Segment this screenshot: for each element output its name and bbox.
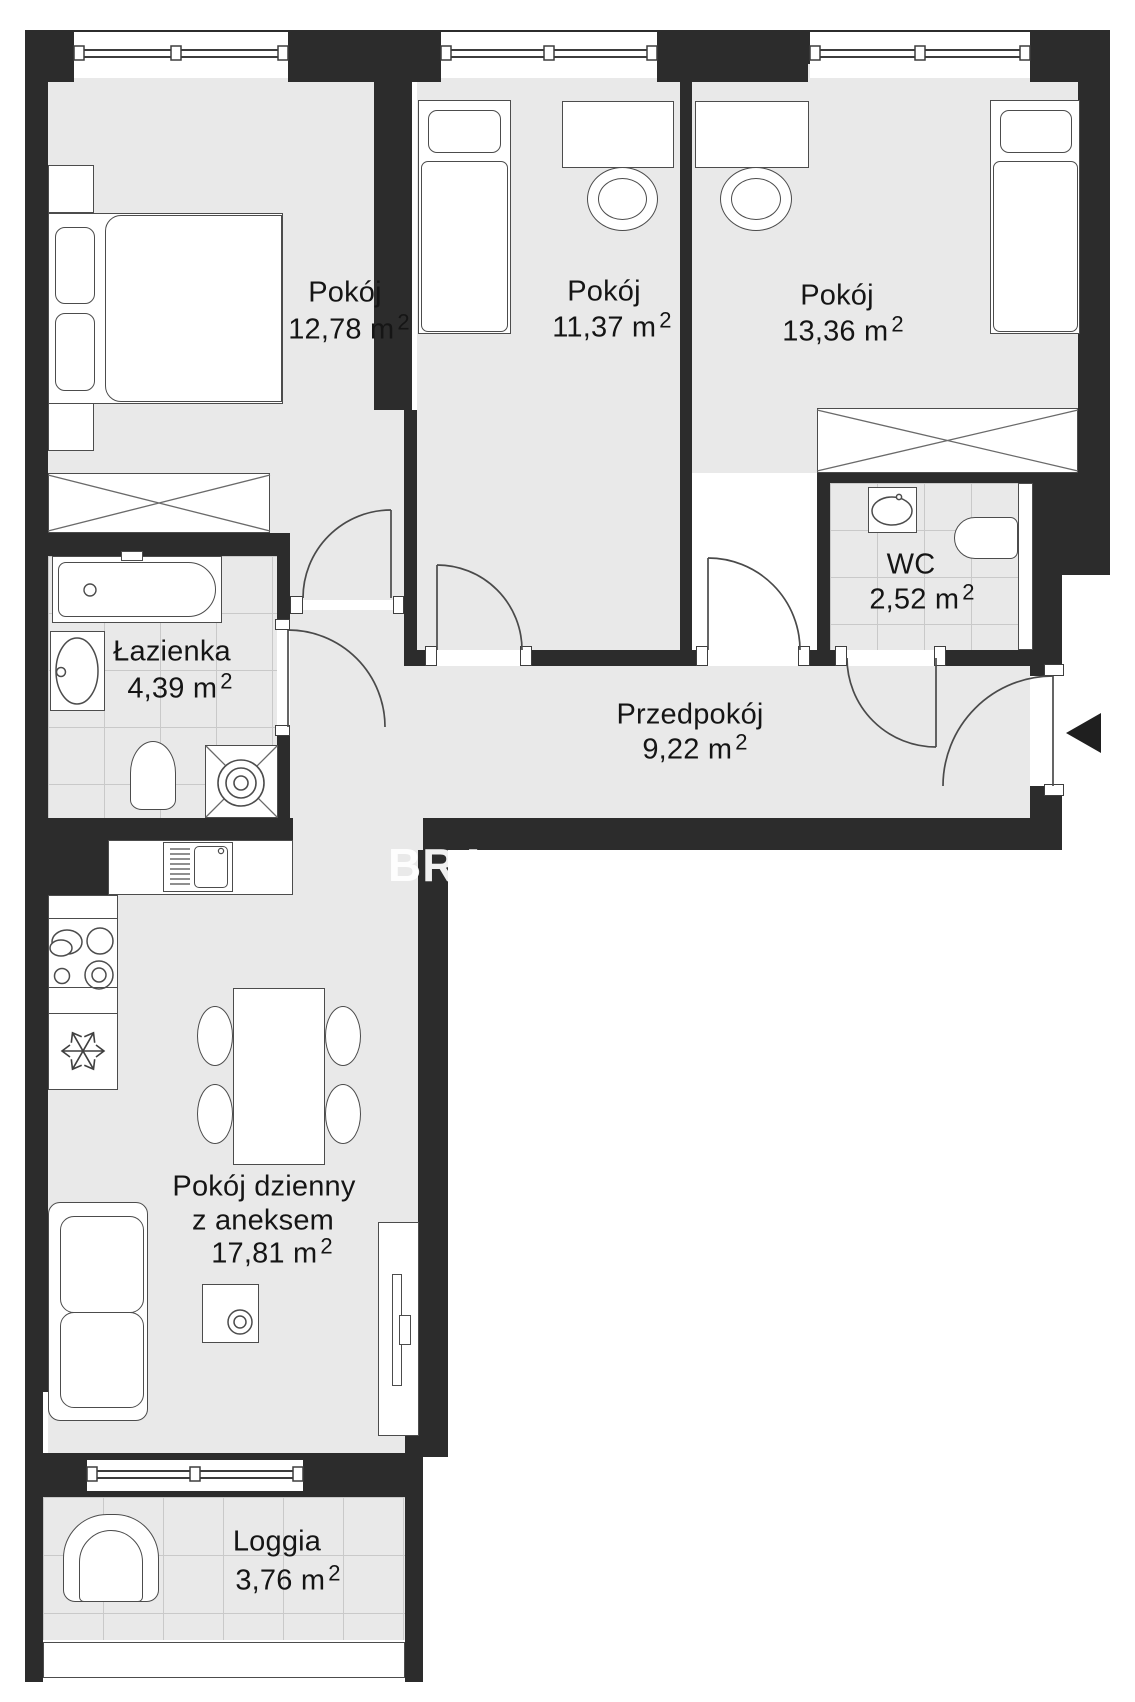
wc-area: 2,52 m2 (869, 584, 974, 617)
bathroom-name: Łazienka (113, 636, 231, 669)
washing-machine-drum (218, 760, 264, 806)
plan-detail-overlay (0, 0, 1135, 1702)
room3-name: Pokój (800, 280, 874, 313)
room2-area: 11,37 m2 (552, 312, 671, 345)
wc-sink-bowl (872, 494, 912, 525)
bathroom-area: 4,39 m2 (127, 673, 232, 706)
door-room1 (303, 510, 391, 598)
door-bathroom (288, 630, 385, 727)
living-room-area: 17,81 m2 (211, 1238, 333, 1271)
living-room-name: Pokój dzienny (172, 1171, 355, 1204)
kitchen-sink-drain (218, 848, 223, 853)
hallway-name: Przedpokój (616, 699, 763, 732)
cup-icon (228, 1310, 252, 1334)
bathtub-drain (84, 584, 96, 596)
room1-name: Pokój (308, 277, 382, 310)
wardrobe-x-room1 (48, 475, 270, 531)
wardrobe-x-room3 (817, 410, 1078, 471)
kitchen-sink-drainer (170, 849, 190, 884)
door-wc (847, 658, 936, 747)
door-entrance (943, 676, 1053, 786)
floor-plan: Pokój 12,78 m2 Pokój 11,37 m2 Pokój 13,3… (0, 0, 1135, 1702)
loggia-name: Loggia (233, 1526, 321, 1559)
watermark: BRA (388, 838, 491, 892)
hallway-area: 9,22 m2 (642, 734, 747, 767)
entrance-arrow-icon (1066, 713, 1101, 753)
snowflake-icon (62, 1030, 104, 1072)
door-room3 (708, 558, 800, 650)
stove-burners (50, 928, 113, 989)
wc-name: WC (887, 549, 936, 582)
door-room2 (437, 565, 522, 650)
living-room-name2: z aneksem (192, 1205, 334, 1238)
loggia-area: 3,76 m2 (235, 1565, 340, 1598)
bathroom-sink-bowl (56, 638, 98, 704)
room2-name: Pokój (567, 276, 641, 309)
room1-area: 12,78 m2 (288, 314, 410, 347)
room3-area: 13,36 m2 (782, 316, 904, 349)
